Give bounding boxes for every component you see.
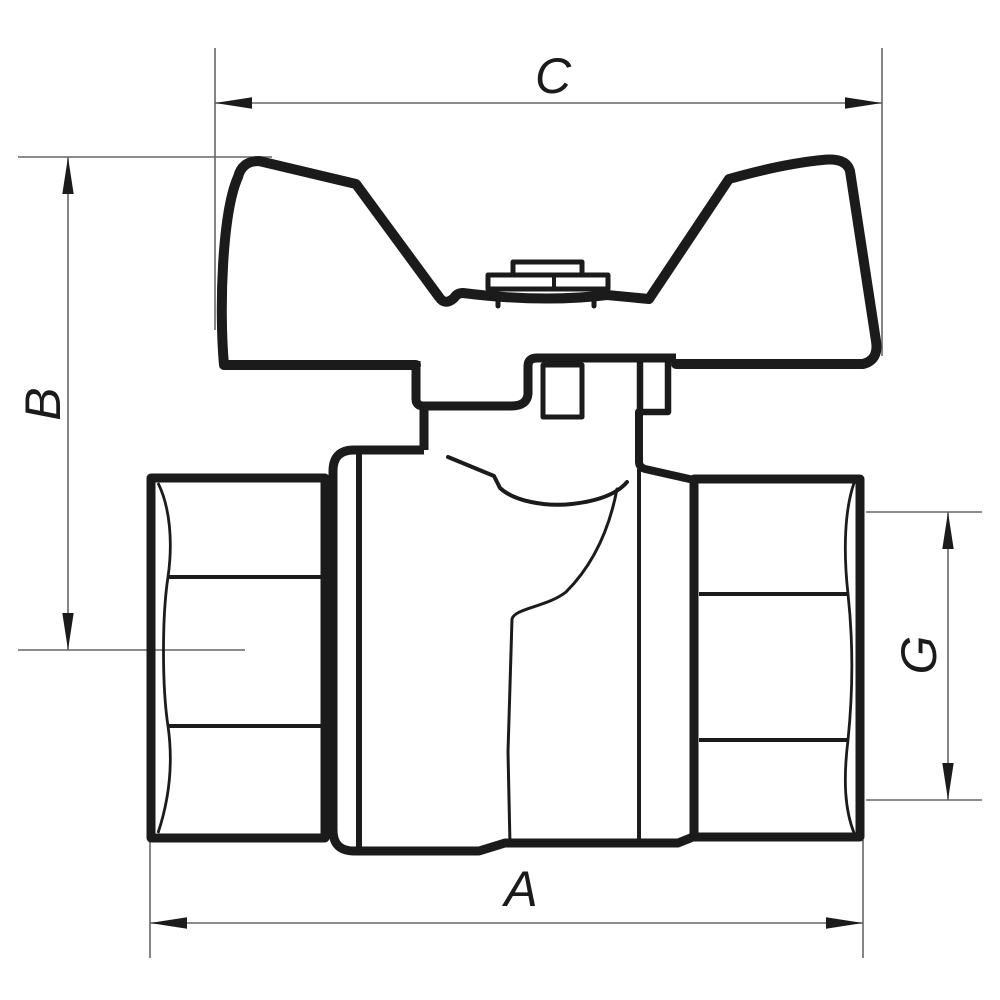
arrow-c-left bbox=[215, 97, 252, 108]
dim-label-G: G bbox=[891, 636, 947, 675]
arrow-g-top bbox=[942, 512, 953, 549]
body-spout-contour bbox=[448, 457, 627, 505]
handle-boss-cap bbox=[513, 262, 582, 275]
stem-flat-square bbox=[543, 365, 582, 417]
neck-notch bbox=[640, 358, 668, 412]
arrow-a-left bbox=[150, 917, 187, 928]
arrow-c-right bbox=[845, 97, 882, 108]
right-hex-nut bbox=[694, 479, 860, 837]
dim-label-B: B bbox=[15, 387, 71, 420]
arrow-g-bottom bbox=[942, 763, 953, 800]
left-hex-outline bbox=[151, 478, 325, 838]
arrow-b-top bbox=[62, 157, 73, 194]
dim-label-A: A bbox=[501, 861, 537, 917]
right-hex-chamfer-curve bbox=[845, 483, 854, 833]
dim-label-C: C bbox=[535, 48, 572, 104]
arrow-b-bottom bbox=[62, 613, 73, 650]
left-hex-nut bbox=[151, 478, 325, 838]
drawing-svg: C B A G bbox=[0, 0, 1000, 1000]
neck-right-step bbox=[639, 412, 694, 480]
arrow-a-right bbox=[826, 917, 863, 928]
valve-technical-drawing: C B A G bbox=[0, 0, 1000, 1000]
butterfly-handle bbox=[222, 159, 877, 365]
body-ball-passage-contour bbox=[508, 489, 617, 845]
left-hex-chamfer-curve bbox=[158, 483, 170, 833]
right-hex-outline bbox=[694, 479, 860, 837]
valve-body bbox=[333, 450, 693, 851]
